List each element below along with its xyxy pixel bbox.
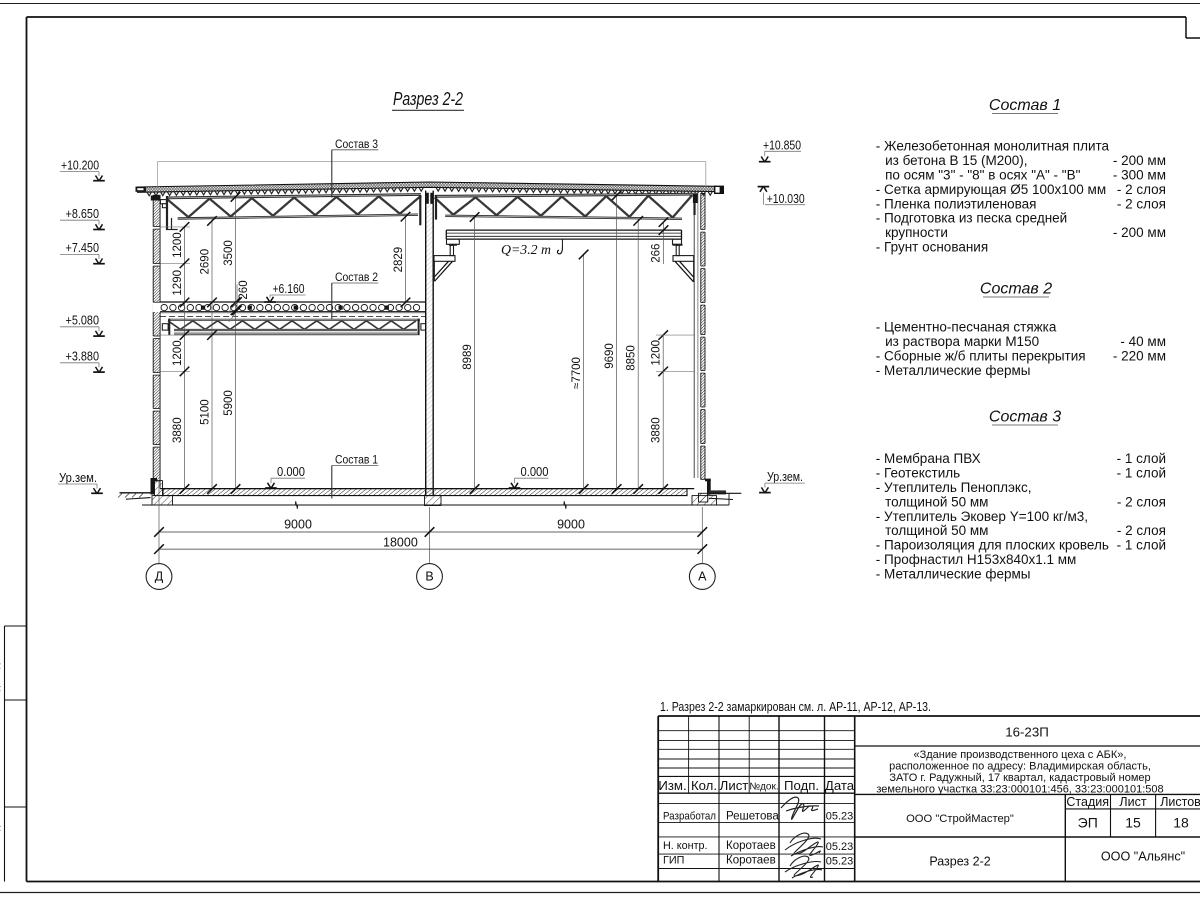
svg-text:2690: 2690 <box>199 249 211 275</box>
svg-text:Ур.зем.: Ур.зем. <box>767 470 803 484</box>
svg-text:Д: Д <box>155 570 164 584</box>
svg-text:- 2 слоя: - 2 слоя <box>1117 523 1166 538</box>
svg-text:+5.080: +5.080 <box>66 314 100 328</box>
svg-text:- 1 слой: - 1 слой <box>1117 465 1166 480</box>
svg-text:Подп.: Подп. <box>784 778 819 793</box>
svg-text:- Цементно-песчаная стяжка: - Цементно-песчаная стяжка <box>876 320 1057 335</box>
svg-text:0.000: 0.000 <box>277 465 305 479</box>
svg-text:А: А <box>698 570 707 584</box>
svg-text:05.23: 05.23 <box>826 811 854 823</box>
svg-text:Разрез 2-2: Разрез 2-2 <box>393 88 464 109</box>
svg-text:15: 15 <box>1125 815 1141 831</box>
svg-text:- Металлические фермы: - Металлические фермы <box>876 363 1031 378</box>
svg-text:Ур.зем.: Ур.зем. <box>59 471 97 485</box>
svg-text:1200: 1200 <box>172 340 184 366</box>
svg-text:ООО "Альянс": ООО "Альянс" <box>1101 850 1185 864</box>
svg-text:9000: 9000 <box>557 518 585 532</box>
svg-text:+10.850: +10.850 <box>763 138 801 152</box>
svg-text:ГИП: ГИП <box>663 855 684 867</box>
svg-text:Изм.: Изм. <box>658 778 686 793</box>
svg-text:- Мембрана ПВХ: - Мембрана ПВХ <box>876 451 981 466</box>
svg-text:+7.450: +7.450 <box>66 241 100 255</box>
svg-text:ЗАТО г. Радужный, 17 квартал,: ЗАТО г. Радужный, 17 квартал, кадастровы… <box>889 772 1150 784</box>
svg-text:16-23П: 16-23П <box>1005 725 1049 740</box>
svg-text:+10.030: +10.030 <box>767 192 805 206</box>
svg-text:18000: 18000 <box>383 535 418 549</box>
svg-text:9690: 9690 <box>604 343 616 369</box>
svg-text:+6.160: +6.160 <box>273 282 305 296</box>
svg-text:- 1 слой: - 1 слой <box>1117 451 1166 466</box>
svg-text:Разрез 2-2: Разрез 2-2 <box>929 855 990 869</box>
svg-text:- 2 слоя: - 2 слоя <box>1117 196 1166 211</box>
svg-text:8989: 8989 <box>462 344 474 370</box>
svg-text:05.23: 05.23 <box>826 856 854 868</box>
svg-text:- 200 мм: - 200 мм <box>1113 225 1166 240</box>
svg-text:Состав 3: Состав 3 <box>335 137 378 151</box>
svg-text:крупности: крупности <box>885 225 948 240</box>
svg-text:- 2 слоя: - 2 слоя <box>1117 494 1166 509</box>
svg-text:- 1 слой: - 1 слой <box>1117 538 1166 553</box>
svg-text:из бетона В 15 (М200),: из бетона В 15 (М200), <box>885 153 1027 168</box>
svg-text:5900: 5900 <box>223 390 235 416</box>
svg-text:1290: 1290 <box>172 270 184 296</box>
svg-text:Подп. и дата: Подп. и дата <box>0 649 1 702</box>
svg-text:- Пленка полиэтиленовая: - Пленка полиэтиленовая <box>876 196 1037 211</box>
svg-text:- Сетка армирующая Ø5 100х100: - Сетка армирующая Ø5 100х100 мм <box>876 182 1106 197</box>
svg-text:- Пароизоляция для плоских кро: - Пароизоляция для плоских кровель <box>876 538 1109 553</box>
svg-text:Листов: Листов <box>1160 795 1200 809</box>
svg-text:- Подготовка из песка средней: - Подготовка из песка средней <box>876 211 1067 226</box>
svg-text:- Сборные ж/б плиты перекрытия: - Сборные ж/б плиты перекрытия <box>876 348 1086 363</box>
svg-text:- Профнастил Н153х840х1.1 мм: - Профнастил Н153х840х1.1 мм <box>876 552 1077 567</box>
svg-text:Лист: Лист <box>1119 795 1146 809</box>
svg-text:+8.650: +8.650 <box>66 207 100 221</box>
svg-text:Лист: Лист <box>720 778 749 793</box>
svg-text:Коротаев: Коротаев <box>726 840 776 852</box>
svg-text:3880: 3880 <box>651 417 663 443</box>
svg-text:- Металлические фермы: - Металлические фермы <box>876 567 1031 582</box>
svg-text:- 200 мм: - 200 мм <box>1113 153 1166 168</box>
svg-text:+10.200: +10.200 <box>61 158 99 172</box>
svg-text:2829: 2829 <box>393 247 405 273</box>
svg-text:1200: 1200 <box>651 340 663 366</box>
svg-text:Н. контр.: Н. контр. <box>663 840 708 852</box>
svg-text:Дата: Дата <box>825 778 855 793</box>
svg-text:толщиной 50 мм: толщиной 50 мм <box>885 494 988 509</box>
svg-text:18: 18 <box>1173 815 1189 831</box>
svg-text:5100: 5100 <box>199 399 211 425</box>
svg-text:3500: 3500 <box>223 240 235 266</box>
svg-text:по осям "3" - "8" в осях "А" -: по осям "3" - "8" в осях "А" - "В" <box>885 167 1080 182</box>
svg-text:Q=3.2 т: Q=3.2 т <box>501 242 551 257</box>
svg-text:Разработал: Разработал <box>663 811 716 823</box>
svg-text:- Утеплитель Пеноплэкс,: - Утеплитель Пеноплэкс, <box>876 480 1032 495</box>
svg-text:из раствора марки М150: из раствора марки М150 <box>885 334 1039 349</box>
svg-text:3880: 3880 <box>172 417 184 443</box>
svg-text:Состав 1: Состав 1 <box>989 97 1061 114</box>
svg-text:толщиной 50 мм: толщиной 50 мм <box>885 523 988 538</box>
svg-text:В: В <box>425 570 433 584</box>
svg-text:266: 266 <box>651 244 663 263</box>
svg-text:Решетова: Решетова <box>726 811 779 823</box>
svg-text:- Грунт основания: - Грунт основания <box>876 240 988 255</box>
svg-text:≈7700: ≈7700 <box>571 357 583 389</box>
svg-text:0.000: 0.000 <box>521 465 549 479</box>
svg-text:Состав 2: Состав 2 <box>335 270 378 284</box>
svg-text:земельного участка 33:23:00010: земельного участка 33:23:000101:456, 33:… <box>876 783 1163 795</box>
svg-text:ЭП: ЭП <box>1078 815 1098 831</box>
svg-text:+3.880: +3.880 <box>66 350 100 364</box>
svg-text:1. Разрез 2-2 замаркирован см.: 1. Разрез 2-2 замаркирован см. л. АР-11,… <box>660 700 931 714</box>
svg-text:- Железобетонная монолитная п: - Железобетонная монолитная плита <box>876 139 1110 154</box>
svg-text:ООО "СтройМастер": ООО "СтройМастер" <box>906 813 1014 825</box>
svg-text:- Геотекстиль: - Геотекстиль <box>876 465 960 480</box>
svg-text:1200: 1200 <box>172 232 184 258</box>
svg-text:- 40 мм: - 40 мм <box>1120 334 1166 349</box>
svg-text:Коротаев: Коротаев <box>726 855 776 867</box>
svg-text:8850: 8850 <box>626 345 638 371</box>
svg-text:- 220 мм: - 220 мм <box>1113 348 1166 363</box>
svg-text:Взам. инв. №: Взам. инв. № <box>0 739 1 795</box>
svg-text:- 2 слоя: - 2 слоя <box>1117 182 1166 197</box>
svg-text:9000: 9000 <box>284 518 312 532</box>
svg-text:Инв. № подл.: Инв. № подл. <box>0 818 1 874</box>
svg-text:Состав 1: Состав 1 <box>335 453 378 467</box>
svg-text:Кол.: Кол. <box>691 778 717 793</box>
svg-text:Состав 3: Состав 3 <box>989 409 1061 426</box>
svg-text:Стадия: Стадия <box>1066 795 1109 809</box>
svg-text:- Утеплитель Эковер Y=100 кг/м: - Утеплитель Эковер Y=100 кг/м3, <box>876 509 1088 524</box>
svg-text:260: 260 <box>238 280 250 299</box>
svg-text:05.23: 05.23 <box>826 841 854 853</box>
svg-text:«Здание производственного цеха: «Здание производственного цеха с АБК», <box>914 749 1127 761</box>
svg-text:расположенное по адресу: Влади: расположенное по адресу: Владимирская об… <box>889 760 1151 772</box>
svg-text:Состав 2: Состав 2 <box>980 281 1052 298</box>
svg-text:- 300 мм: - 300 мм <box>1113 167 1166 182</box>
svg-text:№док.: №док. <box>749 782 778 793</box>
